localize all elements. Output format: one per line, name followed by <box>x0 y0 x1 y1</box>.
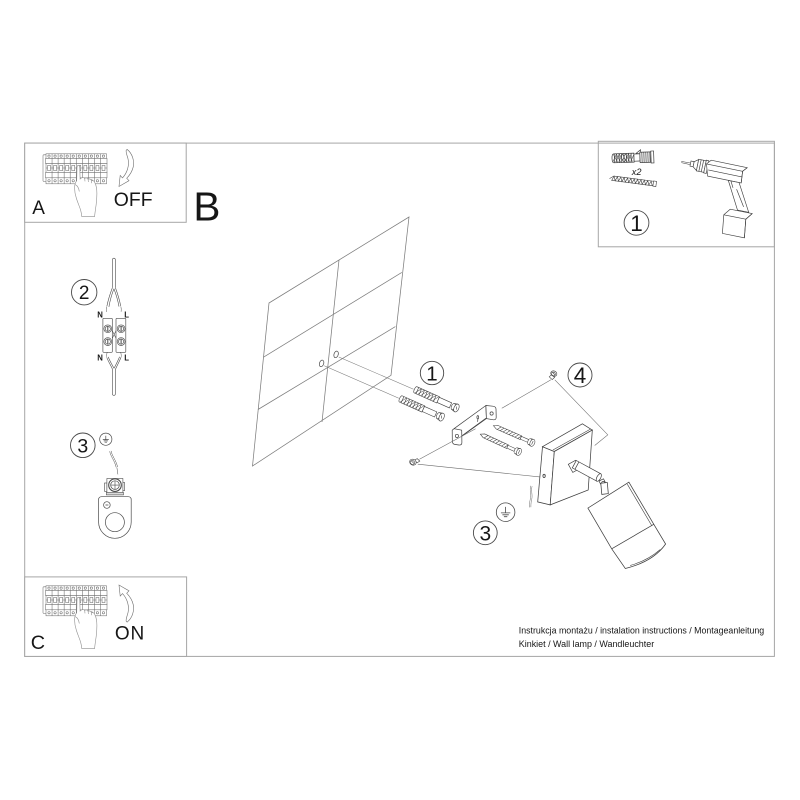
svg-text:N: N <box>97 353 103 362</box>
svg-text:1: 1 <box>630 211 643 236</box>
svg-text:4: 4 <box>574 363 587 388</box>
svg-text:Instrukcja montażu / instalati: Instrukcja montażu / instalation instruc… <box>519 625 765 635</box>
svg-text:B: B <box>193 184 220 230</box>
svg-text:A: A <box>32 198 45 219</box>
svg-text:3: 3 <box>479 523 491 546</box>
svg-text:Kinkiet / Wall lamp / Wandleuc: Kinkiet / Wall lamp / Wandleuchter <box>519 639 654 649</box>
svg-text:1: 1 <box>426 362 437 385</box>
svg-text:2: 2 <box>79 283 90 304</box>
svg-text:L: L <box>124 353 129 362</box>
svg-text:N: N <box>97 310 103 319</box>
svg-text:x2: x2 <box>631 167 642 177</box>
svg-text:OFF: OFF <box>114 189 153 211</box>
svg-text:C: C <box>31 632 45 654</box>
svg-text:3: 3 <box>77 435 88 457</box>
svg-text:ON: ON <box>115 624 145 645</box>
